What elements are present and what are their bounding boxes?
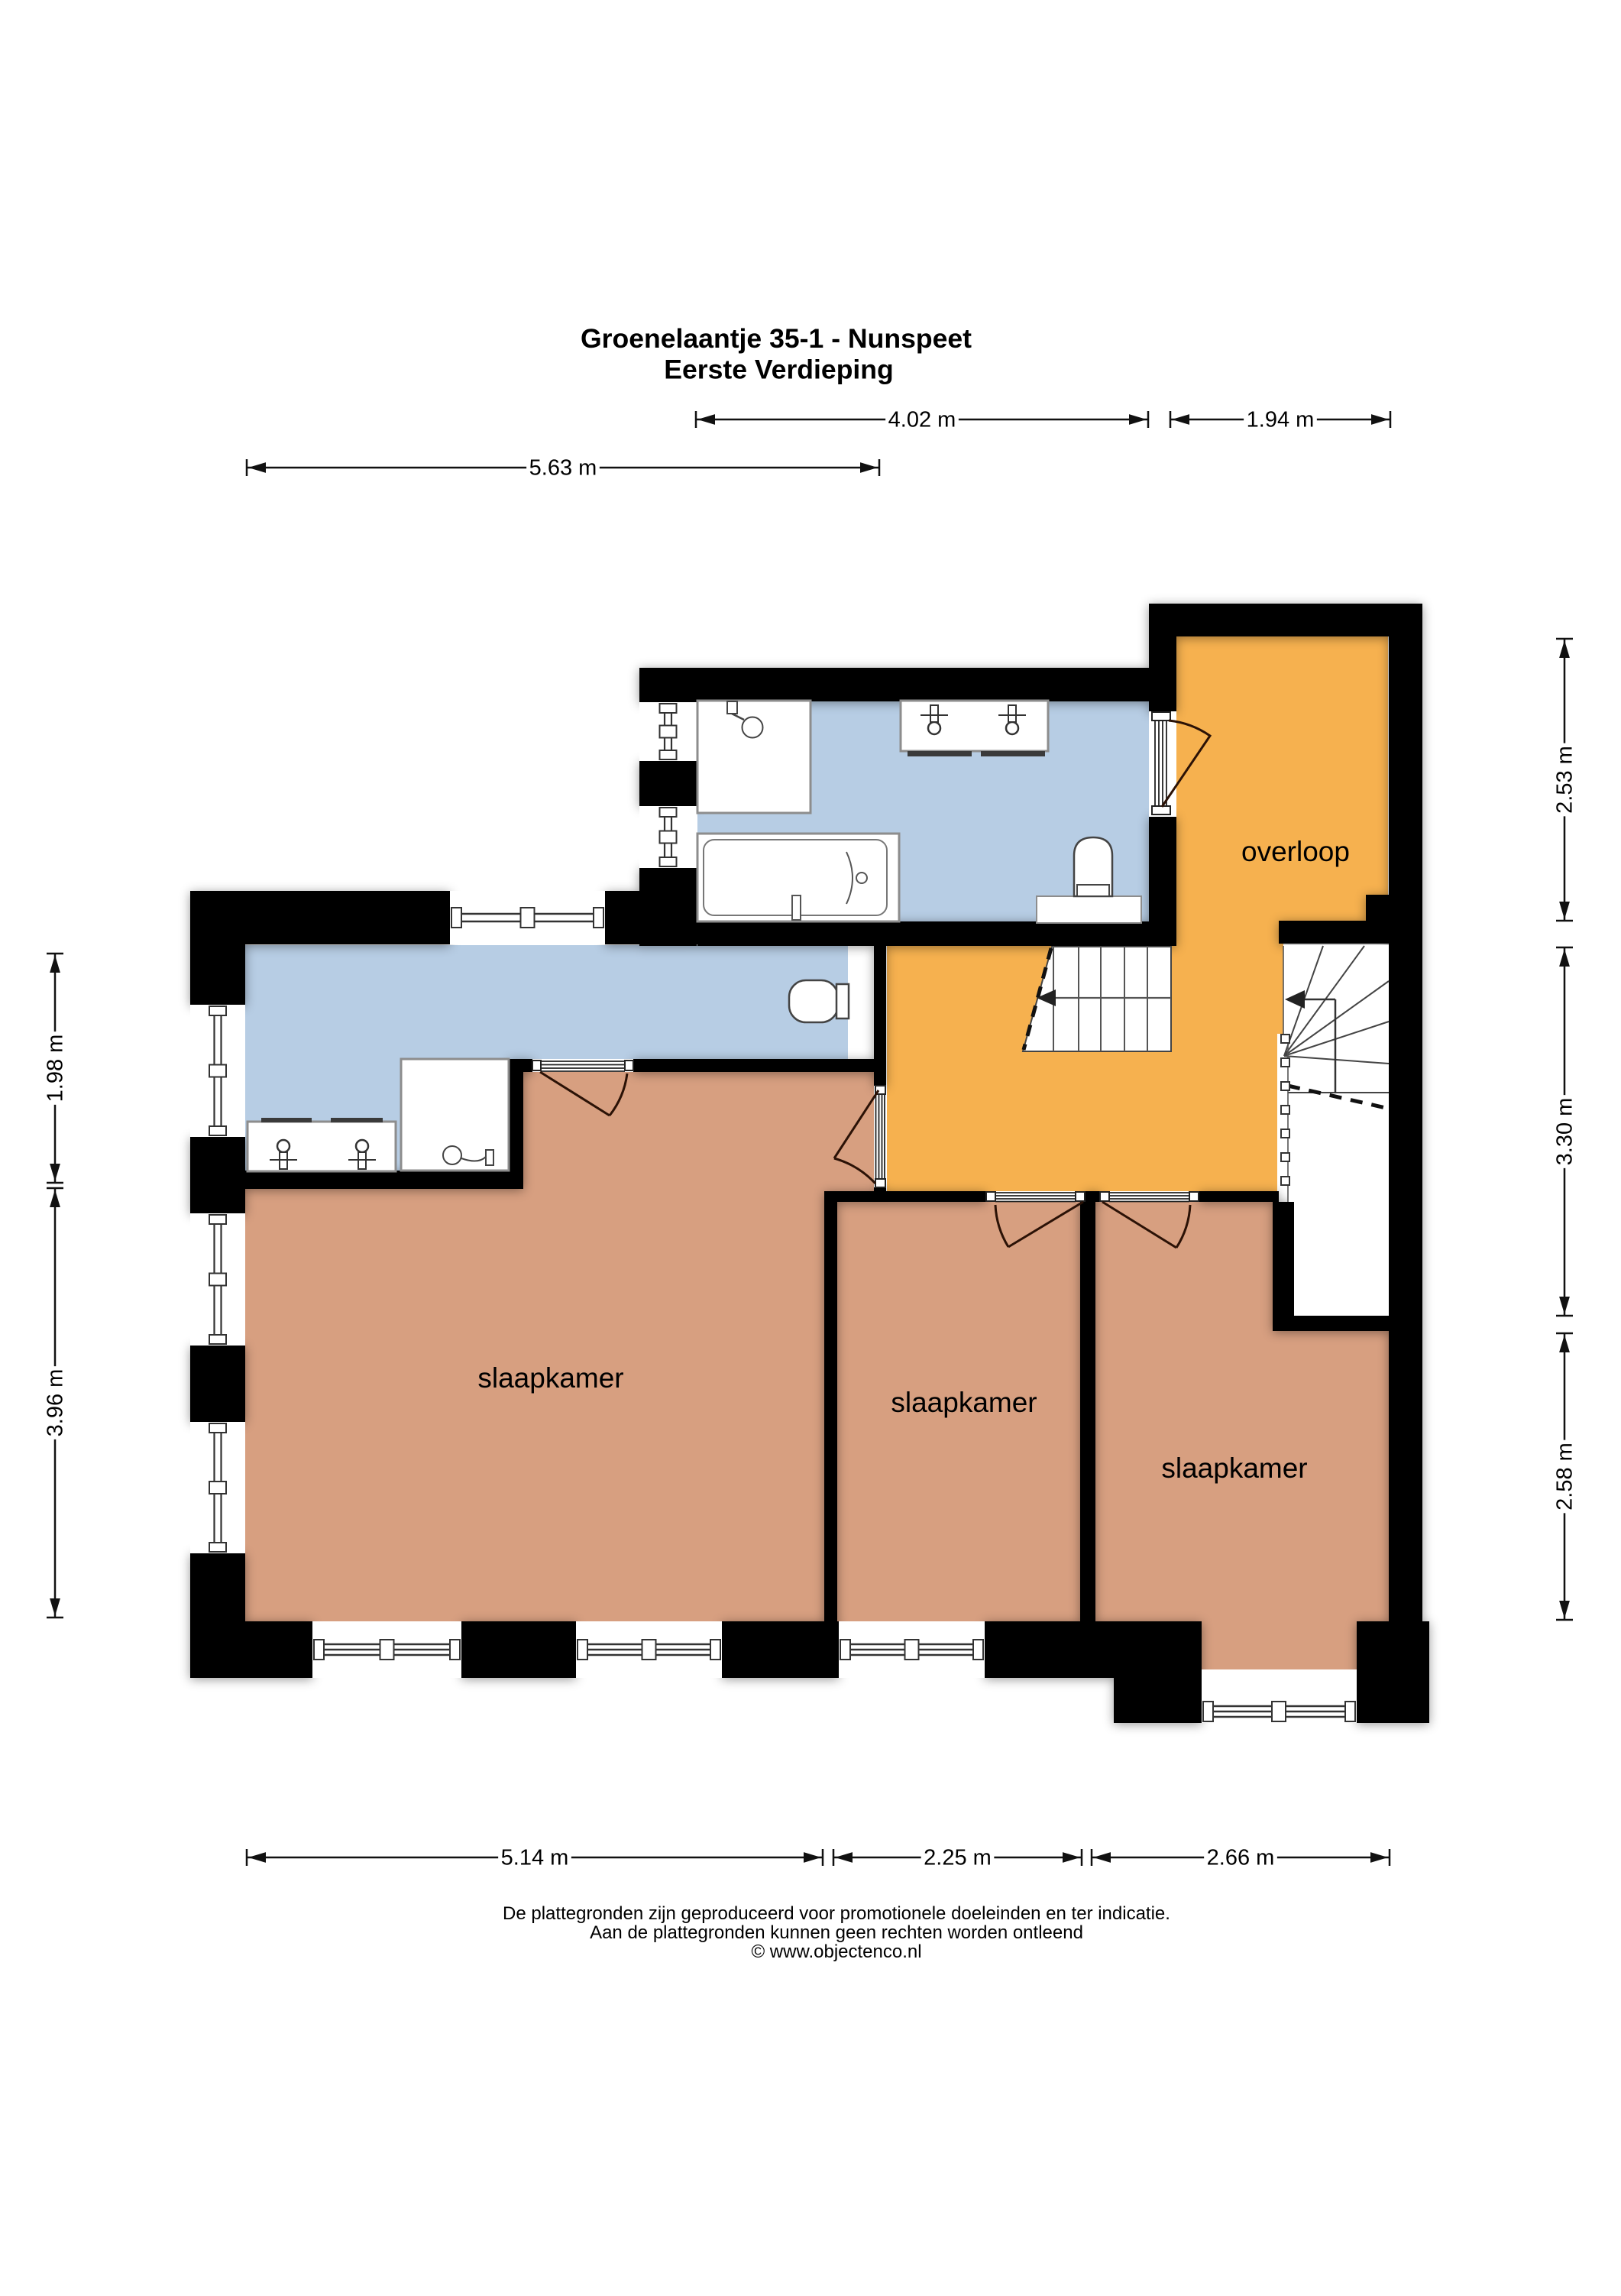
svg-text:slaapkamer: slaapkamer	[477, 1362, 623, 1394]
svg-text:2.58 m: 2.58 m	[1553, 1443, 1577, 1511]
svg-text:De plattegronden zijn geproduc: De plattegronden zijn geproduceerd voor …	[503, 1903, 1170, 1924]
svg-text:Eerste Verdieping: Eerste Verdieping	[664, 355, 894, 385]
svg-text:1.94 m: 1.94 m	[1247, 408, 1315, 432]
svg-text:© www.objectenco.nl: © www.objectenco.nl	[751, 1941, 921, 1962]
svg-text:3.30 m: 3.30 m	[1553, 1098, 1577, 1166]
svg-text:2.53 m: 2.53 m	[1553, 746, 1577, 814]
svg-text:2.66 m: 2.66 m	[1207, 1846, 1275, 1870]
svg-text:3.96 m: 3.96 m	[44, 1369, 68, 1437]
svg-text:slaapkamer: slaapkamer	[891, 1387, 1037, 1418]
svg-text:Groenelaantje 35-1 - Nunspeet: Groenelaantje 35-1 - Nunspeet	[581, 323, 972, 354]
svg-text:5.14 m: 5.14 m	[501, 1846, 569, 1870]
svg-text:2.25 m: 2.25 m	[924, 1846, 992, 1870]
svg-text:overloop: overloop	[1241, 836, 1350, 867]
svg-text:Aan de plattegronden kunnen ge: Aan de plattegronden kunnen geen rechten…	[590, 1922, 1083, 1943]
svg-text:5.63 m: 5.63 m	[529, 456, 597, 481]
svg-text:slaapkamer: slaapkamer	[1161, 1452, 1307, 1484]
svg-text:1.98 m: 1.98 m	[44, 1035, 68, 1103]
svg-text:4.02 m: 4.02 m	[888, 408, 956, 432]
